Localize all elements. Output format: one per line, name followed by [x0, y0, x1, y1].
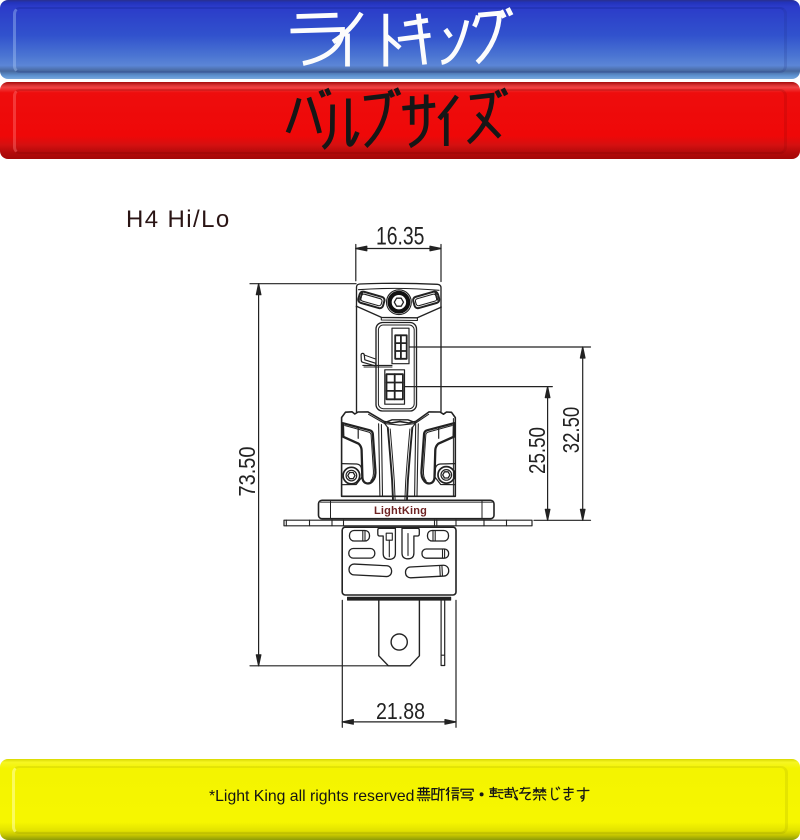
svg-text:25.50: 25.50 — [524, 427, 550, 474]
svg-text:LightKing: LightKing — [374, 505, 427, 517]
svg-text:16.35: 16.35 — [376, 223, 425, 251]
svg-text:32.50: 32.50 — [558, 407, 584, 454]
svg-text:21.88: 21.88 — [376, 698, 425, 724]
svg-text:*Light King all rights reserve: *Light King all rights reserved — [209, 788, 414, 805]
svg-text:73.50: 73.50 — [234, 447, 260, 497]
